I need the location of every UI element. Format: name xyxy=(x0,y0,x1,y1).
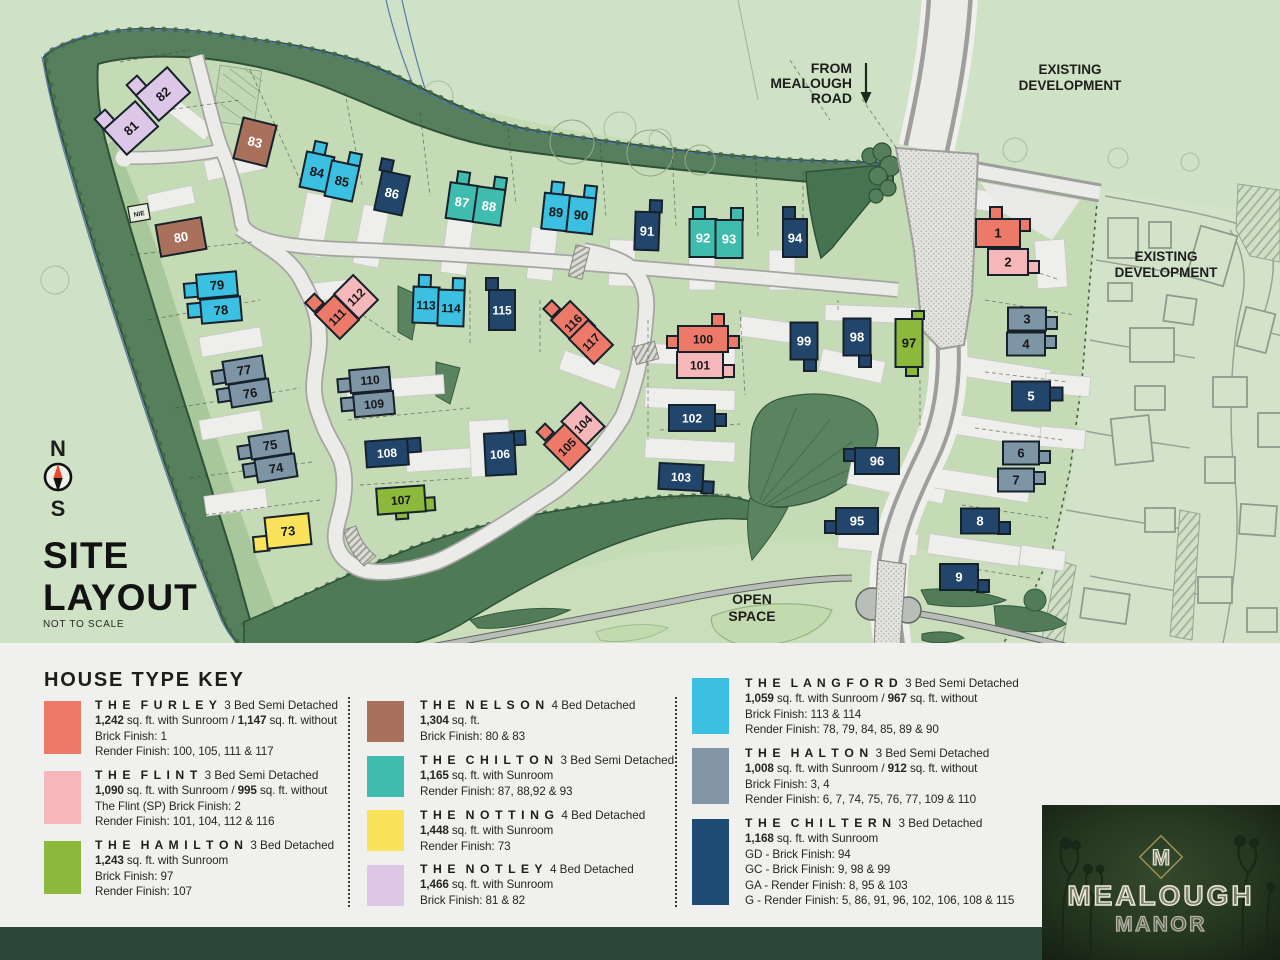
svg-text:1: 1 xyxy=(994,226,1001,241)
svg-text:106: 106 xyxy=(490,447,511,462)
svg-text:109: 109 xyxy=(363,396,384,412)
svg-text:107: 107 xyxy=(391,493,412,508)
svg-text:100: 100 xyxy=(693,332,713,346)
svg-text:92: 92 xyxy=(696,231,710,246)
svg-text:5: 5 xyxy=(1027,389,1034,404)
svg-text:EXISTING: EXISTING xyxy=(1038,62,1101,77)
svg-text:MANOR: MANOR xyxy=(1115,913,1207,936)
svg-text:95: 95 xyxy=(850,514,864,529)
svg-text:77: 77 xyxy=(236,362,253,379)
svg-text:98: 98 xyxy=(850,330,864,345)
svg-text:3: 3 xyxy=(1023,312,1030,327)
svg-text:94: 94 xyxy=(788,231,803,246)
svg-text:FROM: FROM xyxy=(811,60,852,76)
svg-text:78: 78 xyxy=(213,302,229,318)
svg-text:85: 85 xyxy=(333,172,350,190)
svg-text:90: 90 xyxy=(573,207,589,223)
svg-text:115: 115 xyxy=(492,303,512,317)
svg-text:110: 110 xyxy=(360,372,381,388)
svg-text:DEVELOPMENT: DEVELOPMENT xyxy=(1019,78,1123,93)
svg-text:87: 87 xyxy=(454,194,470,211)
svg-text:ROAD: ROAD xyxy=(811,90,852,106)
svg-text:N: N xyxy=(50,436,66,461)
svg-text:6: 6 xyxy=(1017,446,1024,461)
svg-text:101: 101 xyxy=(690,358,710,372)
svg-text:97: 97 xyxy=(902,336,916,351)
svg-text:MEALOUGH: MEALOUGH xyxy=(770,75,852,91)
svg-text:89: 89 xyxy=(548,204,564,220)
svg-text:7: 7 xyxy=(1012,473,1019,488)
svg-text:113: 113 xyxy=(416,298,436,313)
svg-text:SITE: SITE xyxy=(43,535,129,576)
svg-text:80: 80 xyxy=(173,229,190,246)
svg-text:OPEN: OPEN xyxy=(732,591,772,607)
svg-text:86: 86 xyxy=(383,184,400,202)
svg-text:DEVELOPMENT: DEVELOPMENT xyxy=(1115,265,1219,280)
svg-text:9: 9 xyxy=(955,570,962,585)
svg-text:96: 96 xyxy=(870,454,884,469)
svg-text:EXISTING: EXISTING xyxy=(1134,249,1197,264)
svg-text:91: 91 xyxy=(640,223,655,238)
svg-text:73: 73 xyxy=(280,523,296,539)
svg-text:NOT TO SCALE: NOT TO SCALE xyxy=(43,619,124,630)
svg-text:102: 102 xyxy=(682,411,702,425)
svg-text:114: 114 xyxy=(441,301,461,316)
svg-text:75: 75 xyxy=(262,437,279,454)
svg-text:8: 8 xyxy=(976,514,983,529)
svg-text:LAYOUT: LAYOUT xyxy=(43,577,198,618)
svg-text:4: 4 xyxy=(1022,337,1030,352)
svg-text:MEALOUGH: MEALOUGH xyxy=(1067,880,1254,911)
svg-text:79: 79 xyxy=(209,277,225,293)
svg-text:103: 103 xyxy=(671,470,692,485)
svg-text:S: S xyxy=(51,496,66,521)
svg-text:108: 108 xyxy=(377,446,398,461)
svg-text:99: 99 xyxy=(797,334,811,349)
svg-text:SPACE: SPACE xyxy=(728,608,775,624)
svg-text:76: 76 xyxy=(242,385,259,402)
svg-text:M: M xyxy=(1152,845,1170,870)
svg-text:88: 88 xyxy=(481,198,497,215)
svg-text:93: 93 xyxy=(722,232,736,247)
svg-text:2: 2 xyxy=(1004,255,1011,270)
